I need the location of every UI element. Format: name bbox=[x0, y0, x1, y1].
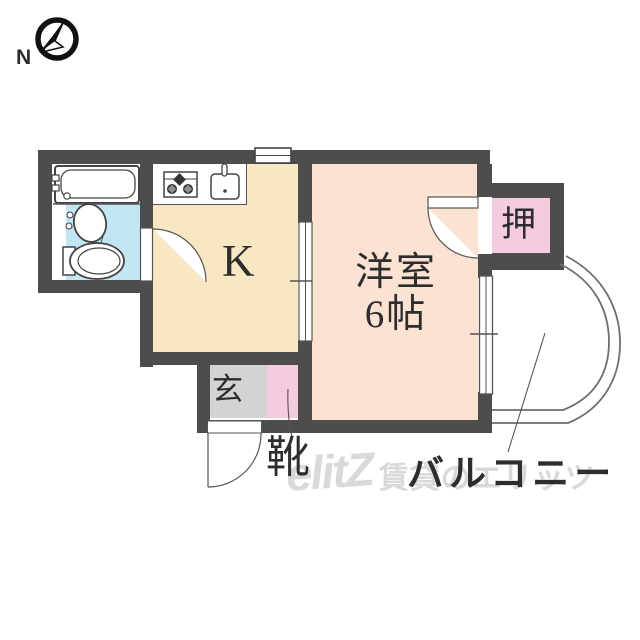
compass-north-label: N bbox=[16, 47, 31, 70]
balcony-outline bbox=[492, 256, 620, 423]
entrance-label: 玄 bbox=[212, 373, 243, 406]
closet-label: 押 bbox=[501, 206, 536, 244]
wall-bottom bbox=[197, 420, 492, 433]
room-name: 洋室 bbox=[355, 251, 437, 294]
wall-closet-bottom bbox=[488, 253, 564, 270]
wall-right-lower bbox=[478, 392, 492, 433]
wall-bathroom-bottom bbox=[38, 280, 153, 293]
balcony-label: バルコニー bbox=[407, 455, 616, 495]
kitchen-counter bbox=[153, 164, 247, 205]
room-size: 6帖 bbox=[365, 293, 428, 336]
wall-entrance-top bbox=[197, 352, 312, 365]
wall-left bbox=[38, 150, 52, 293]
western-room-label: 洋室 6帖 bbox=[340, 252, 452, 336]
wall-kitchen-room-upper bbox=[298, 164, 312, 223]
wall-top bbox=[38, 150, 490, 164]
wall-right-mid bbox=[478, 253, 492, 278]
kitchen-label: K bbox=[222, 237, 255, 286]
wall-bathroom-kitchen bbox=[140, 164, 153, 230]
leader-line-balcony bbox=[508, 333, 545, 452]
floor-plan: N K 洋室 6帖 押 玄 靴 バルコニー elitZ 賃貸のエリッツ bbox=[0, 0, 640, 640]
shoes-label: 靴 bbox=[266, 434, 310, 482]
bathroom-floor bbox=[66, 204, 140, 288]
shoe-cabinet bbox=[267, 365, 298, 418]
compass-icon bbox=[38, 20, 76, 58]
